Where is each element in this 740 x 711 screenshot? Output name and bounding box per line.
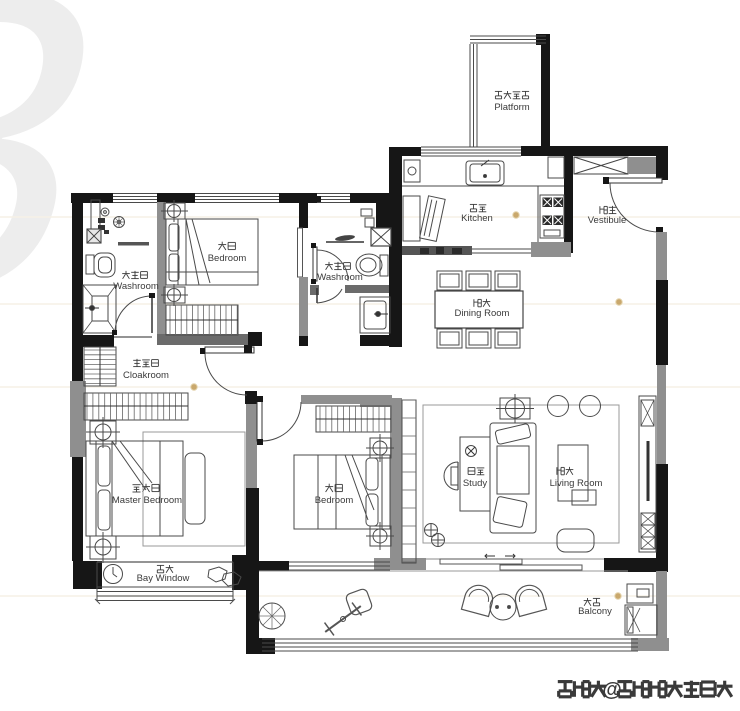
- svg-text:Bay Window: Bay Window: [137, 573, 190, 584]
- svg-text:Bedroom: Bedroom: [208, 253, 247, 264]
- svg-text:Cloakroom: Cloakroom: [123, 370, 169, 381]
- svg-text:Platform: Platform: [494, 102, 529, 113]
- svg-text:Study: Study: [463, 478, 488, 489]
- svg-text:Bedroom: Bedroom: [315, 495, 354, 506]
- svg-text:Vestibule: Vestibule: [588, 215, 627, 226]
- svg-text:Master Bedroom: Master Bedroom: [112, 495, 182, 506]
- svg-text:Kitchen: Kitchen: [461, 213, 493, 224]
- svg-text:Washroom: Washroom: [317, 272, 363, 283]
- svg-text:Dining Room: Dining Room: [455, 308, 510, 319]
- svg-text:Washroom: Washroom: [113, 281, 159, 292]
- svg-text:Balcony: Balcony: [578, 606, 612, 617]
